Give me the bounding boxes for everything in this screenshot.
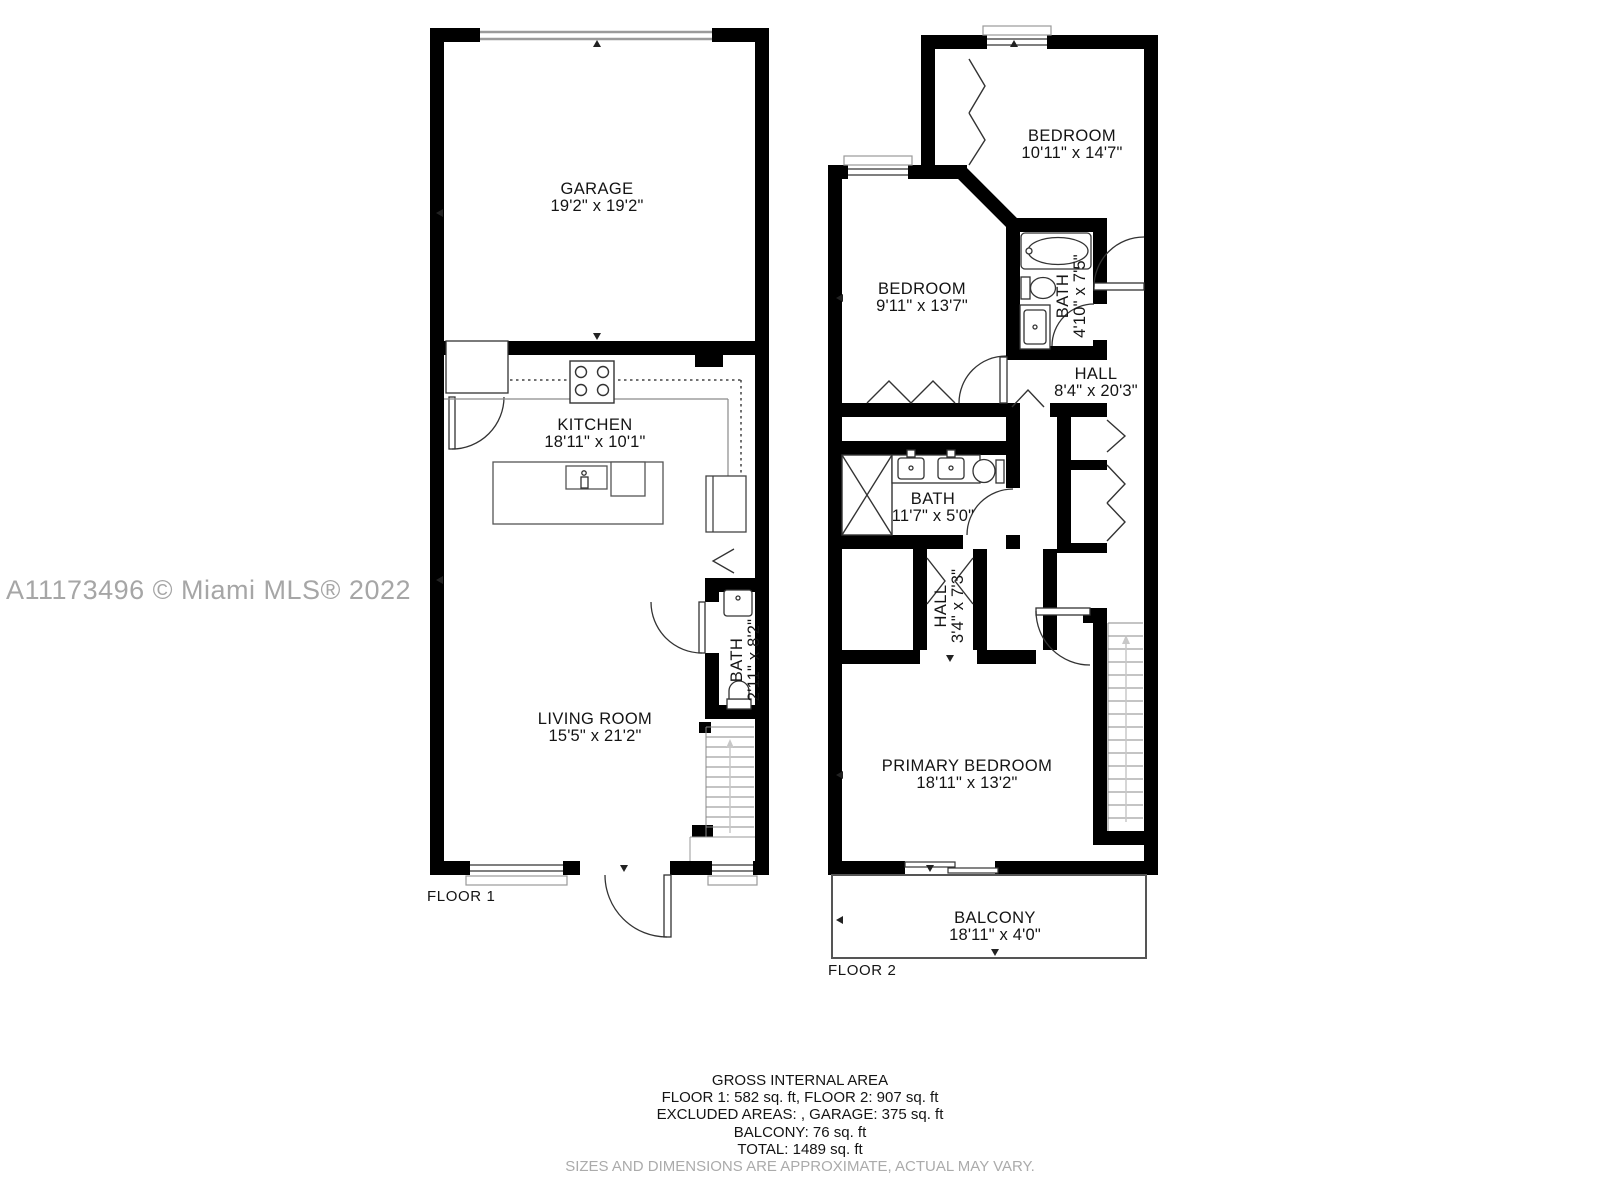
floor2-tag: FLOOR 2 xyxy=(828,962,896,979)
summary-title: GROSS INTERNAL AREA xyxy=(565,1072,1035,1089)
kitchen-door xyxy=(449,397,504,449)
summary-total: TOTAL: 1489 sq. ft xyxy=(565,1141,1035,1158)
room-label-primary-bedroom: PRIMARY BEDROOM 18'11" x 13'2" xyxy=(882,758,1052,792)
mls-watermark: A11173496 © Miami MLS® 2022 xyxy=(6,575,411,606)
floor1-bath-door xyxy=(651,602,705,653)
floor1-window-left xyxy=(466,865,567,885)
corner-closet-door xyxy=(713,549,734,573)
area-summary: GROSS INTERNAL AREA FLOOR 1: 582 sq. ft,… xyxy=(565,1072,1035,1175)
room-label-bedroom-top: BEDROOM 10'11" x 14'7" xyxy=(1021,128,1122,162)
main-bath-toilet-icon xyxy=(973,460,1004,484)
garage-door xyxy=(480,32,712,39)
shower-icon xyxy=(842,455,892,535)
stove-icon xyxy=(570,361,614,403)
room-label-living-room: LIVING ROOM 15'5" x 21'2" xyxy=(538,711,652,745)
diagonal-wall xyxy=(961,172,1013,224)
room-label-hall: HALL 8'4" x 20'3" xyxy=(1054,366,1138,400)
floor2-small-bath-vanity-icon xyxy=(1020,305,1050,349)
floor1-tag: FLOOR 1 xyxy=(427,888,495,905)
floor2-small-bath-toilet-icon xyxy=(1021,277,1056,299)
floor1-plan xyxy=(430,28,769,937)
room-label-balcony: BALCONY 18'11" x 4'0" xyxy=(949,910,1041,944)
summary-disclaimer: SIZES AND DIMENSIONS ARE APPROXIMATE, AC… xyxy=(565,1158,1035,1175)
summary-areas: FLOOR 1: 582 sq. ft, FLOOR 2: 907 sq. ft xyxy=(565,1089,1035,1106)
room-label-floor1-bath: BATH 2'11" x 8'2" xyxy=(729,619,763,702)
floor2-stairs xyxy=(1108,623,1143,831)
summary-balcony: BALCONY: 76 sq. ft xyxy=(565,1124,1035,1141)
room-label-hall-small: HALL 3'4" x 7'3" xyxy=(933,569,967,643)
garage-wall-opening xyxy=(446,341,508,393)
kitchen-island xyxy=(493,462,663,524)
floor1-stairs xyxy=(690,727,755,861)
floor1-walls xyxy=(430,28,769,875)
floor2-plan xyxy=(828,26,1158,958)
floor2-left-window xyxy=(844,156,912,175)
fridge-icon xyxy=(706,476,746,532)
floor2-top-window xyxy=(983,26,1051,45)
entry-door xyxy=(605,875,671,937)
floor1-window-right xyxy=(708,865,757,885)
summary-excluded: EXCLUDED AREAS: , GARAGE: 375 sq. ft xyxy=(565,1106,1035,1123)
room-label-kitchen: KITCHEN 18'11" x 10'1" xyxy=(544,417,645,451)
room-label-bath-small: BATH 4'10" x 7'5" xyxy=(1055,254,1089,338)
double-vanity-icon xyxy=(892,450,980,483)
bedroom-mid-door xyxy=(959,356,1007,403)
room-label-bath-main: BATH 11'7" x 5'0" xyxy=(892,491,975,525)
room-label-bedroom-mid: BEDROOM 9'11" x 13'7" xyxy=(876,281,968,315)
room-label-garage: GARAGE 19'2" x 19'2" xyxy=(550,181,643,215)
sliding-door xyxy=(905,862,998,873)
floor1-bath-sink-icon xyxy=(724,590,752,616)
